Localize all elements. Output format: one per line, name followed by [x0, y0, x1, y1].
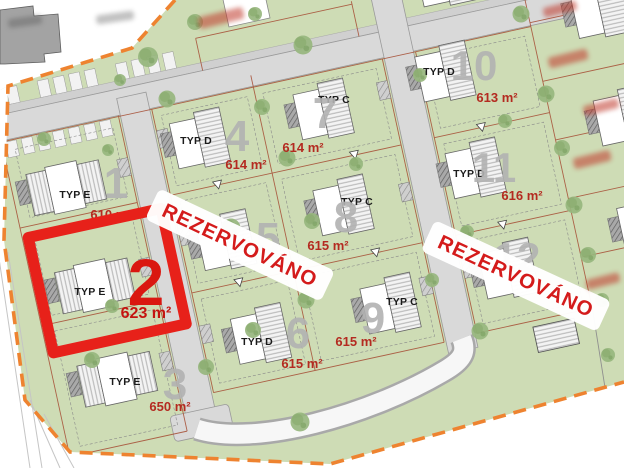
lot-number-1[interactable]: 1: [104, 159, 128, 208]
lot-number-8[interactable]: 8: [334, 193, 358, 242]
tree-icon: [37, 132, 51, 146]
tree-icon: [304, 213, 320, 229]
tree-icon: [291, 413, 310, 432]
tree-icon: [198, 359, 214, 375]
tree-icon: [159, 91, 176, 108]
tree-icon: [248, 7, 262, 21]
tree-icon: [601, 348, 615, 362]
tree-icon: [114, 74, 126, 86]
lot-area-11: 616 m²: [501, 188, 543, 203]
lot-type-3: TYP E: [109, 376, 140, 388]
lot-type-1: TYP E: [59, 189, 90, 201]
lot-type-6: TYP D: [241, 336, 273, 348]
lot-number-10[interactable]: 10: [451, 42, 498, 89]
tree-icon: [554, 140, 570, 156]
tree-icon: [138, 47, 158, 67]
lot-type-2: TYP E: [74, 286, 105, 298]
tree-icon: [425, 273, 439, 287]
lot-type-9: TYP C: [386, 296, 418, 308]
tree-icon: [105, 299, 119, 313]
tree-icon: [538, 86, 555, 103]
lot-area-6: 615 m²: [281, 356, 323, 371]
tree-icon: [254, 99, 270, 115]
lot-area-8: 615 m²: [307, 238, 349, 253]
lot-area-7: 614 m²: [282, 140, 324, 155]
lot-area-10: 613 m²: [476, 90, 518, 105]
lot-number-4[interactable]: 4: [225, 112, 250, 161]
tree-icon: [102, 144, 114, 156]
lot-number-7[interactable]: 7: [313, 89, 337, 138]
tree-icon: [566, 197, 583, 214]
lot-number-11[interactable]: 11: [472, 144, 516, 191]
lot-type-4: TYP D: [180, 135, 212, 147]
tree-icon: [349, 157, 363, 171]
tree-icon: [580, 247, 596, 263]
lot-number-6[interactable]: 6: [286, 309, 310, 358]
site-plan-map: TYP E TYP E TYP E TYP D TYP D TYP C TYP …: [0, 0, 624, 468]
tree-icon: [294, 36, 313, 55]
tree-icon: [472, 323, 489, 340]
site-plan: TYP E TYP E TYP E TYP D TYP D TYP C TYP …: [0, 0, 624, 468]
lot-area-9: 615 m²: [335, 334, 377, 349]
lot-area-4: 614 m²: [225, 157, 267, 172]
tree-icon: [513, 6, 530, 23]
lot-area-3: 650 m²: [149, 399, 191, 414]
tree-icon: [84, 352, 100, 368]
lot-area-2: 623 m²: [121, 305, 172, 322]
tree-icon: [498, 114, 512, 128]
